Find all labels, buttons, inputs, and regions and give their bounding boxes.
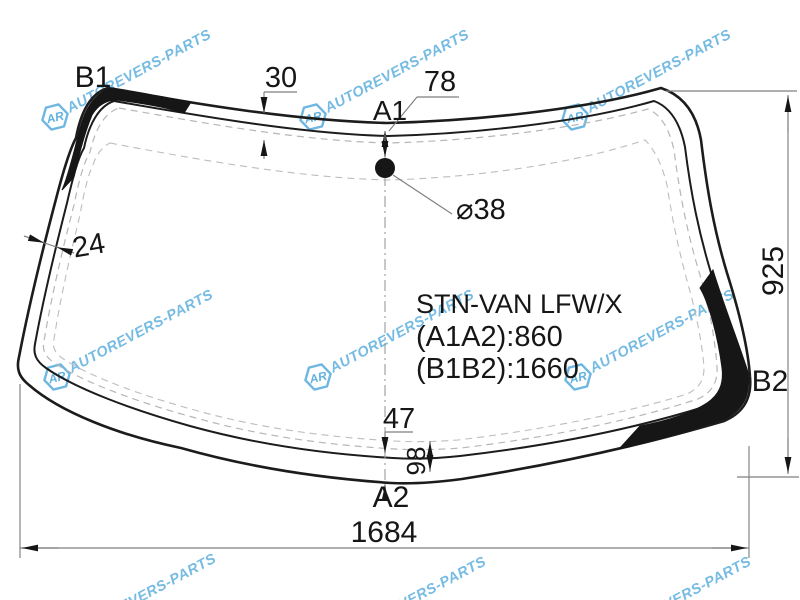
- watermark: AR AUTOREVERS-PARTS: [580, 554, 754, 600]
- brand-logo-icon: AR: [40, 103, 71, 131]
- label-a1: A1: [373, 95, 407, 126]
- brand-logo-text: AR: [44, 109, 65, 127]
- dim-bottom-offset: 47: [383, 403, 415, 453]
- dim-sensor-diameter-value: ⌀38: [456, 194, 506, 226]
- dim-height-value: 925: [757, 246, 790, 296]
- watermark: AR AUTOREVERS-PARTS: [560, 27, 734, 131]
- dim-side-band: 24: [24, 227, 107, 264]
- brand-text: AUTOREVERS-PARTS: [68, 551, 219, 600]
- brand-logo-text: AR: [307, 369, 328, 387]
- brand-text: AUTOREVERS-PARTS: [603, 554, 754, 600]
- dim-width-value: 1684: [351, 516, 418, 549]
- dim-arrow-line: [24, 236, 44, 243]
- label-b2: B2: [752, 365, 789, 398]
- windshield-diagram: AR AUTOREVERS-PARTS AR AUTOREVERS-PARTS …: [0, 0, 800, 600]
- watermark: AR AUTOREVERS-PARTS: [45, 551, 219, 600]
- dim-bottom-band: 98: [401, 441, 431, 475]
- watermark: AR AUTOREVERS-PARTS: [315, 554, 489, 600]
- dim-bottom-offset-value: 47: [383, 403, 415, 435]
- brand-logo-icon: AR: [303, 363, 334, 391]
- diagram-canvas: AR AUTOREVERS-PARTS AR AUTOREVERS-PARTS …: [0, 0, 800, 600]
- dim-side-band-value: 24: [70, 227, 107, 264]
- dim-leader-line: [393, 175, 452, 214]
- dim-top-band-value: 30: [265, 62, 297, 94]
- brand-text: AUTOREVERS-PARTS: [65, 287, 216, 377]
- dim-sensor-diameter: ⌀38: [393, 175, 506, 226]
- point-a1: A1: [373, 95, 407, 157]
- dim-sensor-offset-value: 78: [424, 66, 456, 98]
- label-a2: A2: [373, 481, 410, 514]
- watermark: AR AUTOREVERS-PARTS: [42, 287, 216, 391]
- watermark: AR AUTOREVERS-PARTS: [40, 27, 214, 131]
- brand-text: AUTOREVERS-PARTS: [338, 554, 489, 600]
- dim-top-band: 30: [264, 62, 297, 159]
- dim-arrow-line: [57, 247, 74, 253]
- sensor-dot: [375, 158, 395, 178]
- label-b1: B1: [75, 61, 112, 94]
- spec-a1a2: (A1A2):860: [416, 321, 563, 353]
- part-code: STN-VAN LFW/X: [416, 289, 623, 319]
- dim-bottom-band-value: 98: [401, 447, 431, 476]
- point-a2: A2: [373, 481, 410, 514]
- spec-b1b2: (B1B2):1660: [416, 353, 579, 385]
- windshield-inner-edge: [34, 101, 729, 459]
